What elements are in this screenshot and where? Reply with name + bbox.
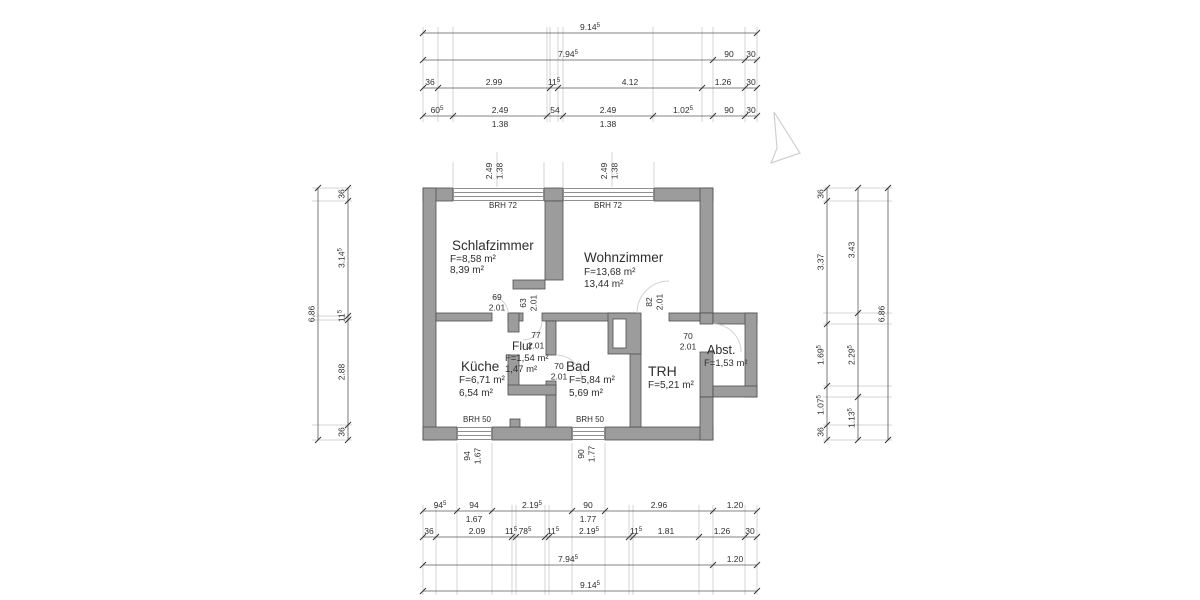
annotation-door-82-dim: 822.01 [644, 293, 665, 310]
dim-label: 94 [469, 500, 479, 510]
annotation-text: BRH 72 [489, 201, 518, 210]
room-name: Flur [512, 339, 533, 353]
annotation-brh-72-right: BRH 72 [594, 201, 623, 210]
dim-label-below: 1.38 [492, 119, 509, 129]
dim-chain-top-openings: 6052.491.38542.491.381.0259030 [420, 105, 760, 129]
annotation-text: 69 [492, 292, 502, 302]
room-name: Wohnzimmer [584, 250, 664, 265]
room-label-bad: BadF=5,84 m²5,69 m² [566, 359, 616, 399]
annotation-text: 2.01 [489, 303, 506, 313]
wall-bottom-wall-right [605, 427, 713, 440]
dim-label: 1.20 [727, 554, 744, 564]
annotation-door-63-dim: 632.01 [518, 294, 539, 311]
dim-label: 3.145 [336, 247, 346, 268]
dim-label: 2.195 [579, 526, 600, 536]
room-area-calculated: F=1,53 m² [704, 358, 748, 369]
room-area-living: 8,39 m² [450, 265, 485, 276]
wall-left-wall [423, 188, 436, 440]
wall-int-wall-schlaf-kueche [436, 313, 492, 321]
annotation-text: 2.01 [680, 342, 697, 352]
dim-chain-bottom-openings: 945941.672.195901.772.961.20 [420, 500, 760, 524]
room-label-wohnzimmer: WohnzimmerF=13,68 m²13,44 m² [584, 250, 664, 290]
dim-chain-right-overall: 6.86 [877, 185, 892, 443]
wall-right-wall-lower [700, 397, 713, 440]
room-label-trh: TRHF=5,21 m² [648, 363, 695, 391]
room-area-living: 5,69 m² [569, 388, 604, 399]
room-name: Küche [461, 359, 499, 374]
wall-flur-bad-divider-upper [546, 321, 556, 355]
dim-chain-right-ext: 3.432.2951.135 [846, 185, 861, 443]
annotation-text: 1.38 [495, 162, 505, 179]
wall-flur-bottom-wall [508, 385, 556, 395]
dim-label: 30 [745, 526, 755, 536]
dim-label: 7.945 [558, 49, 579, 59]
dim-label: 1.20 [727, 500, 744, 510]
dim-label: 3.43 [847, 241, 857, 258]
dim-label: 115 [630, 526, 643, 536]
dim-label: 1.26 [714, 526, 731, 536]
wall-bottom-wall-mid [492, 427, 572, 440]
room-label-schlafzimmer: SchlafzimmerF=8,58 m²8,39 m² [450, 238, 534, 276]
dim-label: 2.99 [486, 77, 503, 87]
room-name: TRH [648, 363, 677, 379]
wall-bottom-wall-left [423, 427, 457, 440]
room-name: Schlafzimmer [452, 238, 534, 253]
dim-label: 785 [519, 526, 532, 536]
north-arrow [771, 112, 800, 163]
annotation-brh-50-right: BRH 50 [576, 415, 605, 424]
dim-label: 3.37 [816, 253, 826, 270]
dim-label: 2.195 [522, 500, 543, 510]
dim-label: 2.295 [846, 344, 856, 365]
dim-label-below: 1.38 [600, 119, 617, 129]
dim-label: 605 [431, 105, 444, 115]
window-schlafzimmer [453, 188, 544, 201]
room-area-calculated: F=8,58 m² [450, 254, 497, 265]
wall-flur-left-top-stub [508, 313, 519, 332]
dim-label: 115 [336, 309, 346, 322]
dim-label: 30 [746, 105, 756, 115]
dim-label: 36 [425, 77, 435, 87]
dim-label: 115 [548, 77, 561, 87]
room-area-living: 6,54 m² [459, 388, 494, 399]
walls [423, 188, 757, 440]
annotation-text: 63 [518, 298, 528, 308]
room-area-living: 1,47 m² [505, 364, 537, 375]
annotation-text: 1.67 [473, 447, 483, 464]
dim-label: 2.88 [337, 363, 347, 380]
dim-label: 30 [746, 77, 756, 87]
room-area-living: 13,44 m² [584, 279, 624, 290]
shaft-opening [613, 319, 626, 348]
wall-int-wall-wohn-trh [669, 313, 700, 321]
room-area-calculated: F=5,21 m² [648, 380, 695, 391]
dim-label: 36 [337, 427, 347, 437]
dim-label: 36 [424, 526, 434, 536]
annotation-text: 2.01 [655, 293, 665, 310]
window-wohnzimmer [563, 188, 654, 201]
dim-label: 9.145 [580, 22, 601, 32]
room-area-calculated: F=13,68 m² [584, 267, 636, 278]
window-kueche [457, 427, 492, 440]
annotation-door-70-abst-dim: 702.01 [680, 331, 697, 352]
annotation-brh-50-left: BRH 50 [463, 415, 492, 424]
wall-right-wall-upper [700, 188, 713, 313]
room-area-calculated: F=1,54 m² [505, 353, 549, 364]
annotation-text: 2.49 [599, 162, 609, 179]
dimension-chains: 9.1457.9459030362.991154.121.26306052.49… [307, 22, 892, 594]
wall-top-wall-mid-pier [544, 188, 563, 201]
wall-ext-bottom-wall [713, 386, 757, 397]
room-name: Bad [566, 359, 590, 374]
annotation-window-bottom-right-dim: 901.77 [576, 445, 597, 462]
wall-schlaf-wohn-divider [545, 201, 563, 280]
dim-label: 1.695 [815, 344, 825, 365]
dim-label: 1.025 [673, 105, 694, 115]
wall-bottom-wall-stub [510, 419, 520, 427]
dim-label: 2.49 [600, 105, 617, 115]
dim-chain-top-main: 7.9459030 [420, 49, 760, 63]
wall-right-wall-ext-corner [700, 313, 713, 324]
dim-label: 90 [724, 105, 734, 115]
dim-label: 90 [583, 500, 593, 510]
dim-label: 54 [550, 105, 560, 115]
dim-chain-right-rooms: 363.371.6951.07536 [815, 185, 830, 443]
annotation-text: BRH 72 [594, 201, 623, 210]
annotation-text: 2.01 [529, 294, 539, 311]
dim-label: 6.86 [877, 305, 887, 322]
room-area-calculated: F=6,71 m² [459, 375, 506, 386]
room-area-calculated: F=5,84 m² [569, 375, 616, 386]
annotation-window-top-left-dim: 2.491.38 [484, 162, 505, 179]
dim-label: 36 [337, 189, 347, 199]
north-arrow-icon [771, 112, 800, 163]
witness-top [423, 27, 757, 122]
dim-label: 945 [434, 500, 447, 510]
annotation-door-69-dim: 692.01 [489, 292, 506, 313]
floor-plan-drawing: 9.1457.9459030362.991154.121.26306052.49… [0, 0, 1200, 600]
dim-chain-bottom-overall: 9.145 [420, 580, 760, 594]
wall-ext-right-wall [745, 313, 757, 397]
annotation-text: 90 [576, 449, 586, 459]
dim-chain-bottom-rooms: 362.091157851152.1951151.811.2630 [420, 526, 760, 540]
annotation-text: 70 [683, 331, 693, 341]
annotation-text: 77 [531, 330, 541, 340]
window-bad [572, 427, 605, 440]
dim-label: 1.81 [658, 526, 675, 536]
dim-label: 7.945 [558, 554, 579, 564]
dim-chain-top-overall: 9.145 [420, 22, 760, 36]
annotation-text: BRH 50 [576, 415, 605, 424]
annotation-text: 70 [554, 361, 564, 371]
dim-label: 1.26 [715, 77, 732, 87]
dim-chain-top-rooms: 362.991154.121.2630 [420, 77, 760, 91]
dim-label: 36 [816, 189, 826, 199]
annotation-text: 1.38 [610, 162, 620, 179]
dim-label-below: 1.67 [466, 514, 483, 524]
dim-label: 36 [816, 427, 826, 437]
dim-label: 90 [724, 49, 734, 59]
dim-chain-left-overall: 6.86 [307, 185, 322, 443]
annotation-text: 82 [644, 297, 654, 307]
annotation-text: BRH 50 [463, 415, 492, 424]
dim-label: 115 [547, 526, 560, 536]
annotation-text: 2.49 [484, 162, 494, 179]
dim-label: 1.075 [815, 394, 825, 415]
annotation-brh-72-left: BRH 72 [489, 201, 518, 210]
dim-label: 30 [746, 49, 756, 59]
dim-label: 6.86 [307, 305, 317, 322]
annotation-text: 1.77 [587, 445, 597, 462]
dim-label: 2.96 [651, 500, 668, 510]
annotation-window-bottom-left-dim: 941.67 [462, 447, 483, 464]
dim-label: 2.09 [469, 526, 486, 536]
dim-label: 9.145 [580, 580, 601, 590]
dim-chain-bottom-main: 7.9451.20 [420, 554, 760, 568]
witness-top_window_centers [497, 152, 612, 187]
dim-label-below: 1.77 [580, 514, 597, 524]
dim-label: 4.12 [622, 77, 639, 87]
dim-label: 1.135 [846, 407, 856, 428]
room-label-kueche: KücheF=6,71 m²6,54 m² [459, 359, 506, 399]
wall-schlaf-wohn-divider-foot [513, 280, 545, 289]
annotation-text: 94 [462, 451, 472, 461]
annotation-window-top-right-dim: 2.491.38 [599, 162, 620, 179]
dim-label: 2.49 [492, 105, 509, 115]
dim-chain-left-rooms: 363.1451152.8836 [336, 185, 351, 443]
room-name: Abst. [707, 343, 736, 357]
floor-plan-page: 9.1457.9459030362.991154.121.26306052.49… [0, 0, 1200, 600]
